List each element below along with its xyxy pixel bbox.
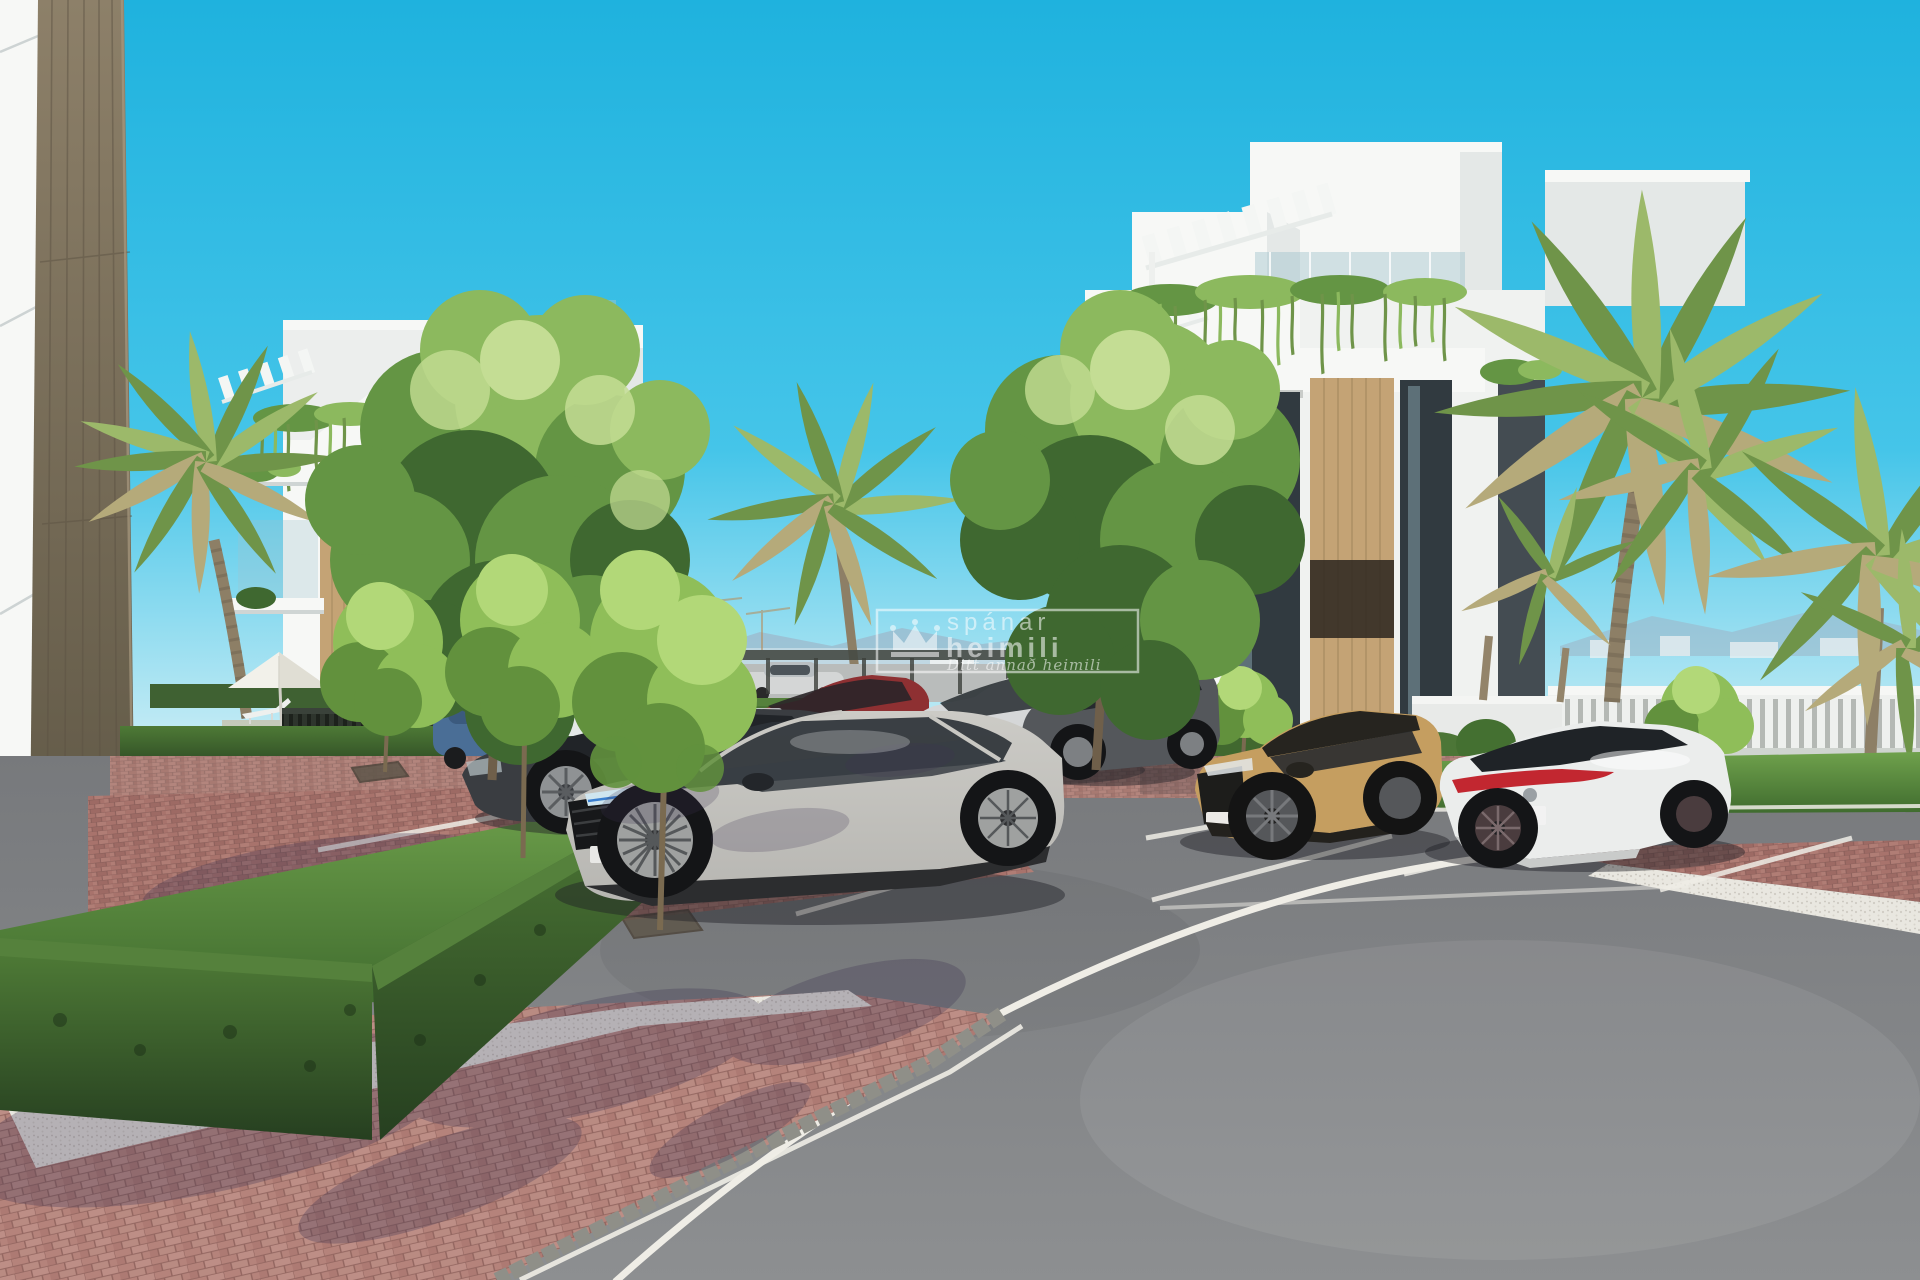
watermark-tagline: Ditt annað heimili xyxy=(946,656,1102,674)
render-image: spánar heimili Ditt annað heimili xyxy=(0,0,1920,1280)
scene: spánar heimili Ditt annað heimili xyxy=(0,0,1920,1280)
